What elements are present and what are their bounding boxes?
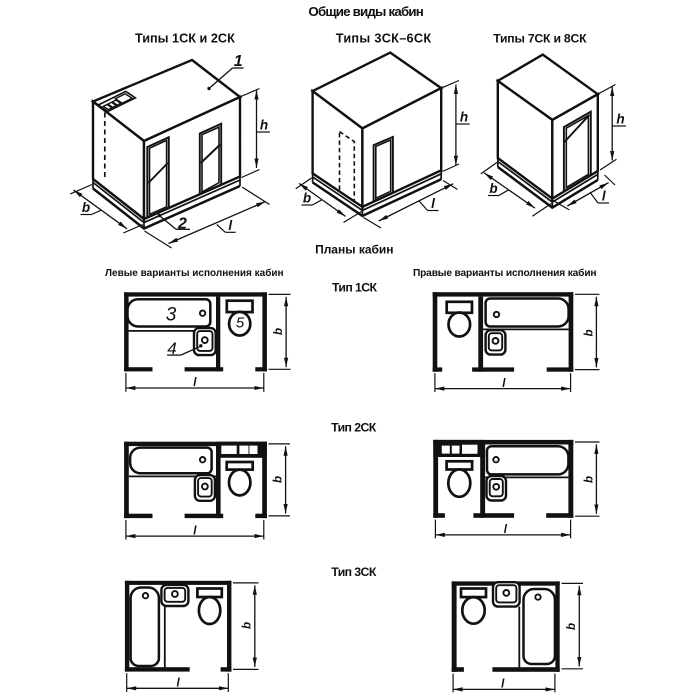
svg-text:b: b [303, 191, 311, 206]
svg-text:l: l [431, 196, 435, 211]
svg-text:b: b [242, 622, 254, 629]
svg-text:Тип 1СК: Тип 1СК [332, 281, 378, 295]
svg-text:b: b [273, 476, 285, 483]
svg-text:Общие виды кабин: Общие виды кабин [308, 4, 423, 19]
svg-text:b: b [489, 181, 497, 196]
svg-text:b: b [273, 328, 285, 335]
svg-text:Типы 1СК и 2СК: Типы 1СК и 2СК [135, 32, 235, 46]
svg-text:b: b [566, 623, 578, 630]
svg-text:h: h [460, 110, 468, 125]
svg-text:4: 4 [167, 339, 176, 358]
svg-text:l: l [602, 189, 606, 204]
svg-text:b: b [583, 329, 595, 336]
svg-text:Тип 2СК: Тип 2СК [331, 421, 377, 435]
svg-text:b: b [82, 200, 90, 215]
svg-text:l: l [228, 218, 232, 233]
svg-text:h: h [616, 112, 624, 127]
svg-text:1: 1 [234, 53, 243, 70]
svg-text:Планы кабин: Планы кабин [315, 243, 393, 257]
svg-text:5: 5 [236, 315, 245, 332]
svg-text:2: 2 [177, 216, 187, 233]
svg-text:Тип 3СК: Тип 3СК [331, 565, 377, 579]
svg-text:3: 3 [166, 304, 177, 325]
svg-text:b: b [583, 476, 595, 483]
svg-text:h: h [260, 118, 268, 133]
svg-text:Типы 3СК–6СК: Типы 3СК–6СК [336, 32, 432, 46]
svg-text:Правые варианты исполнения каб: Правые варианты исполнения кабин [413, 267, 597, 279]
svg-text:Левые варианты исполнения каби: Левые варианты исполнения кабин [105, 267, 284, 279]
svg-text:Типы 7СК и 8СК: Типы 7СК и 8СК [493, 32, 587, 46]
